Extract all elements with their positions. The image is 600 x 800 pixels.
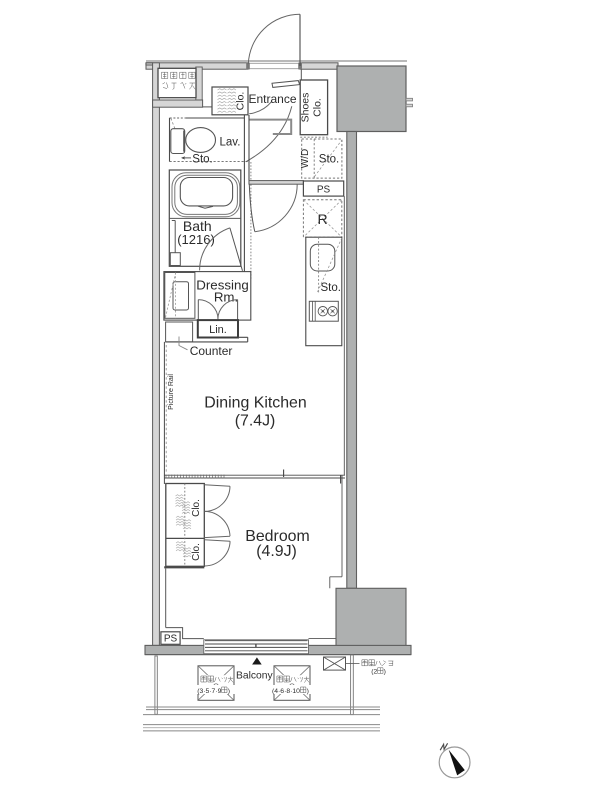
svg-text:(2: (2 xyxy=(371,669,377,676)
svg-text:(1216): (1216) xyxy=(177,232,215,247)
svg-text:Entrance: Entrance xyxy=(248,92,296,106)
svg-text:Rm.: Rm. xyxy=(214,290,238,305)
svg-text:Sto.: Sto. xyxy=(192,154,212,166)
svg-text:(4·6·8·10: (4·6·8·10 xyxy=(272,688,300,695)
svg-text:Clo.: Clo. xyxy=(191,499,202,517)
svg-text:(7.4J): (7.4J) xyxy=(235,413,276,430)
svg-text:Clo.: Clo. xyxy=(235,92,247,111)
svg-text:Lin.: Lin. xyxy=(209,324,227,336)
svg-text:Clo.: Clo. xyxy=(312,98,324,117)
svg-text:): ) xyxy=(307,688,309,695)
svg-text:PS: PS xyxy=(164,634,178,645)
svg-text:Clo.: Clo. xyxy=(191,543,202,561)
svg-text:Sto.: Sto. xyxy=(321,282,341,294)
svg-text:PS: PS xyxy=(317,184,331,195)
svg-text:Dining Kitchen: Dining Kitchen xyxy=(204,394,306,411)
svg-text:(3·5·7·9: (3·5·7·9 xyxy=(197,688,221,695)
svg-text:): ) xyxy=(384,669,386,676)
svg-text:W/D: W/D xyxy=(300,149,311,168)
svg-text:Balcony: Balcony xyxy=(236,670,273,681)
svg-text:Sto.: Sto. xyxy=(319,153,339,165)
svg-text:Shoes: Shoes xyxy=(300,93,312,123)
svg-text:(4.9J): (4.9J) xyxy=(256,543,297,560)
svg-text:Picture Rail: Picture Rail xyxy=(168,374,175,410)
svg-text:Lav.: Lav. xyxy=(220,137,241,149)
svg-text:): ) xyxy=(228,688,230,695)
svg-text:R: R xyxy=(317,211,327,227)
svg-text:Counter: Counter xyxy=(190,344,233,358)
